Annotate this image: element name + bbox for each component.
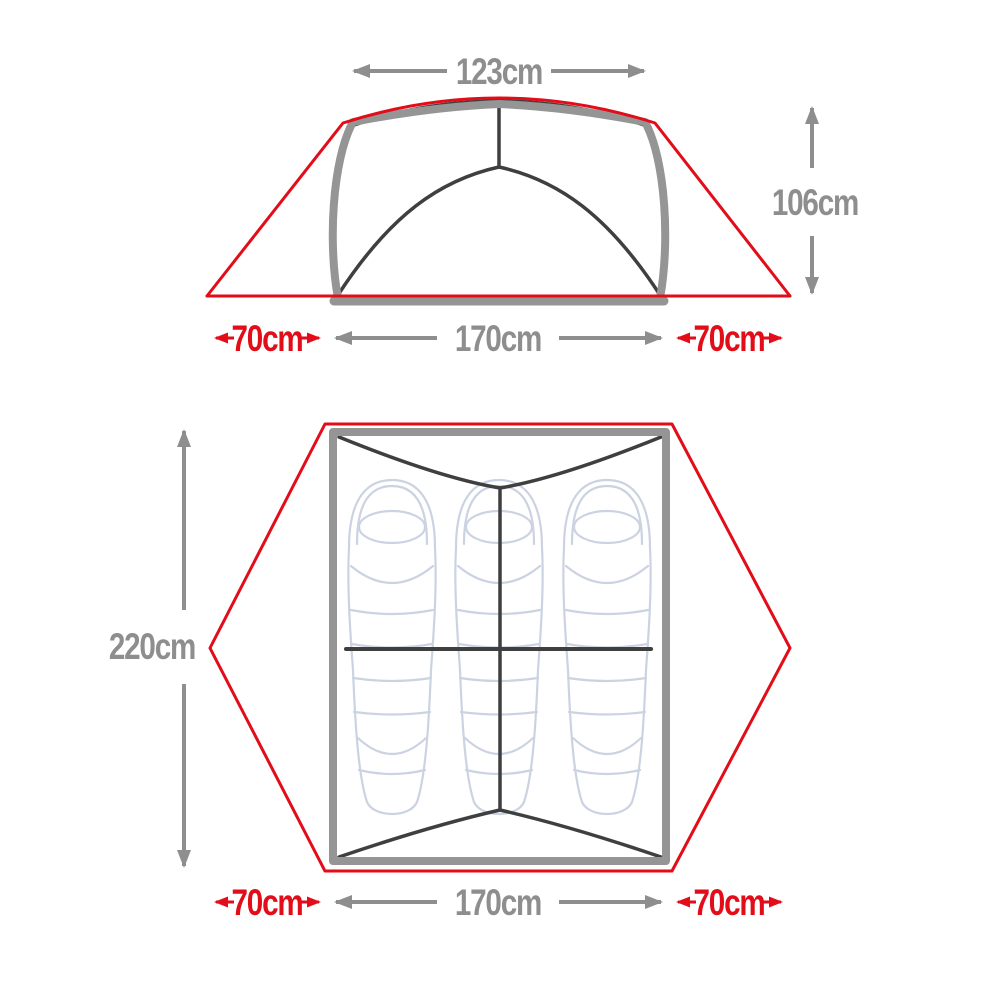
dim-label-floor-width: 170cm (455, 319, 541, 360)
dim-floor-width-plan: 170cm (336, 883, 661, 924)
dim-height: 106cm (772, 108, 858, 293)
dim-label-vestibule-left: 70cm (232, 883, 303, 924)
dim-vestibule-right-plan: 70cm (678, 883, 781, 924)
dim-label-top-width: 123cm (456, 52, 542, 93)
dim-length: 220cm (109, 431, 195, 866)
door-arch-left (338, 167, 499, 295)
door-line-bottom-left (339, 810, 500, 857)
inner-tent-front (338, 100, 660, 295)
door-line-top-left (339, 437, 500, 488)
dim-label-floor-width: 170cm (455, 883, 541, 924)
dim-vestibule-right-front: 70cm (678, 319, 781, 360)
dim-label-vestibule-right: 70cm (694, 883, 765, 924)
door-line-top-right (500, 437, 661, 488)
dim-label-vestibule-left: 70cm (232, 319, 303, 360)
dim-label-height: 106cm (772, 183, 858, 224)
door-arch-right (499, 167, 660, 295)
inner-tent-plan (339, 437, 661, 857)
dim-label-length: 220cm (109, 627, 195, 668)
door-line-bottom-right (500, 810, 661, 857)
dim-label-vestibule-right: 70cm (694, 319, 765, 360)
dim-floor-width-front: 170cm (336, 319, 661, 360)
tent-dimensions-diagram: 123cm 106cm 170cm 70cm 70cm (0, 0, 1000, 1000)
dim-vestibule-left-plan: 70cm (216, 883, 319, 924)
front-elevation-view: 123cm 106cm 170cm 70cm 70cm (207, 52, 858, 360)
dim-top-width: 123cm (354, 52, 644, 93)
diagram-svg: 123cm 106cm 170cm 70cm 70cm (0, 0, 1000, 1000)
dim-vestibule-left-front: 70cm (216, 319, 319, 360)
floor-plan-view: 220cm 170cm 70cm 70cm (109, 424, 790, 924)
